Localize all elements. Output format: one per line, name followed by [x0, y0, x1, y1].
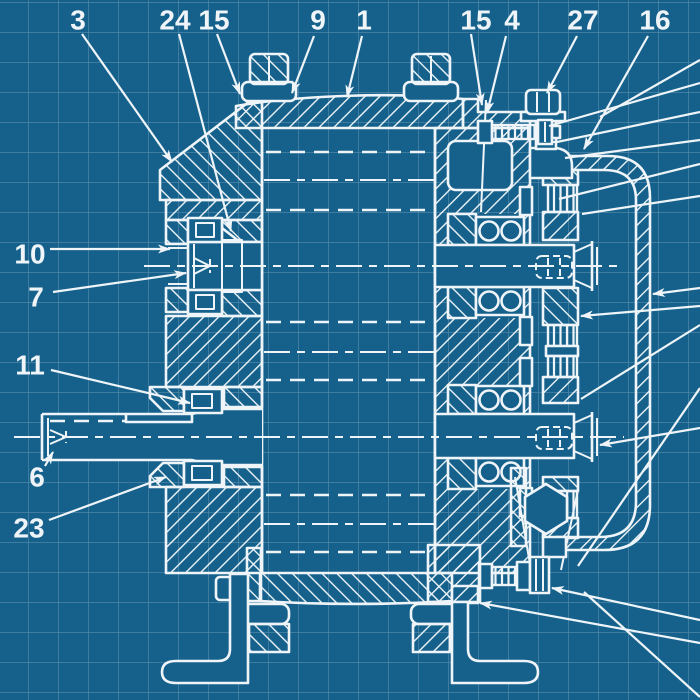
- bolt-threads: [492, 125, 538, 139]
- callout-label-16: 16: [639, 5, 670, 36]
- callout-label-27: 27: [567, 5, 598, 36]
- left-wall-mid: [166, 316, 262, 387]
- bearing-cap-r1b: [448, 287, 476, 318]
- callout-label-23: 23: [13, 513, 44, 544]
- right-wall-pocket: [448, 141, 512, 190]
- housing-bottom-band: [260, 573, 452, 604]
- callout-label-10: 10: [14, 239, 45, 270]
- blueprint-canvas: 3241591154271610711623: [0, 0, 700, 700]
- bearing-wedge-2a: [224, 387, 262, 407]
- callout-label-7: 7: [28, 282, 44, 313]
- callout-label-4: 4: [504, 5, 520, 36]
- callout-label-15: 15: [460, 5, 491, 36]
- bearing-cap-r1a: [448, 214, 476, 245]
- bearing-wedge-1b: [222, 290, 262, 316]
- bearing-cap-r2b: [448, 458, 476, 489]
- bearing-cap-r2a: [448, 385, 476, 414]
- callout-label-9: 9: [310, 5, 326, 36]
- stud-bracket: [530, 148, 572, 178]
- callout-label-1: 1: [356, 5, 372, 36]
- callout-label-11: 11: [15, 350, 45, 381]
- bearing-wedge-2b: [224, 467, 262, 487]
- seal-cap-1a: [166, 220, 188, 244]
- gearbox-blueprint-drawing: 3241591154271610711623: [0, 0, 700, 700]
- seal-cap-1b: [166, 288, 188, 312]
- bolt-head: [478, 121, 492, 143]
- foot-lug-right: [428, 545, 480, 602]
- callout-label-24: 24: [159, 5, 191, 36]
- foot-nut-right: [413, 624, 450, 652]
- foot-nut-left: [249, 624, 289, 652]
- bolt-head: [530, 557, 549, 593]
- callout-label-6: 6: [29, 462, 45, 493]
- ball-bearing: [480, 222, 499, 241]
- callout-label-15: 15: [198, 5, 229, 36]
- spline-hub-3: [548, 356, 577, 377]
- shaft-key: [126, 414, 192, 422]
- bolt-threads: [492, 567, 517, 585]
- hex-nut: [526, 90, 560, 114]
- callout-label-3: 3: [70, 5, 86, 36]
- spline-hub-2: [548, 325, 577, 346]
